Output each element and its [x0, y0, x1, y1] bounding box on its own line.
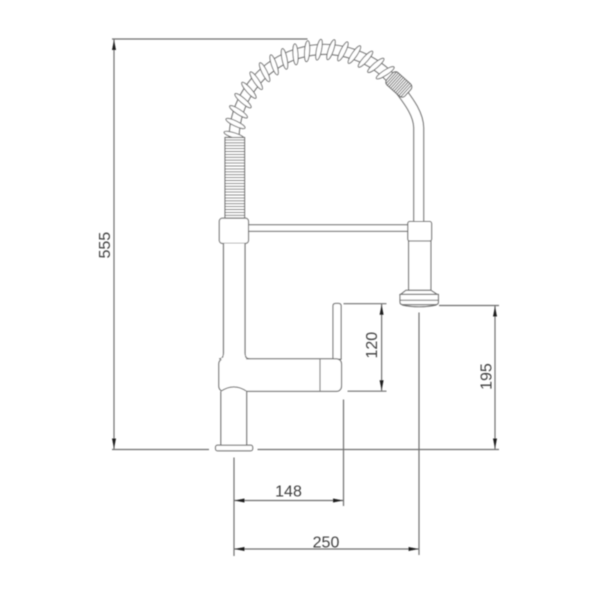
svg-text:120: 120	[364, 332, 381, 359]
svg-text:250: 250	[313, 535, 340, 552]
svg-text:555: 555	[97, 232, 114, 259]
svg-text:195: 195	[479, 363, 496, 390]
svg-text:148: 148	[275, 484, 302, 501]
